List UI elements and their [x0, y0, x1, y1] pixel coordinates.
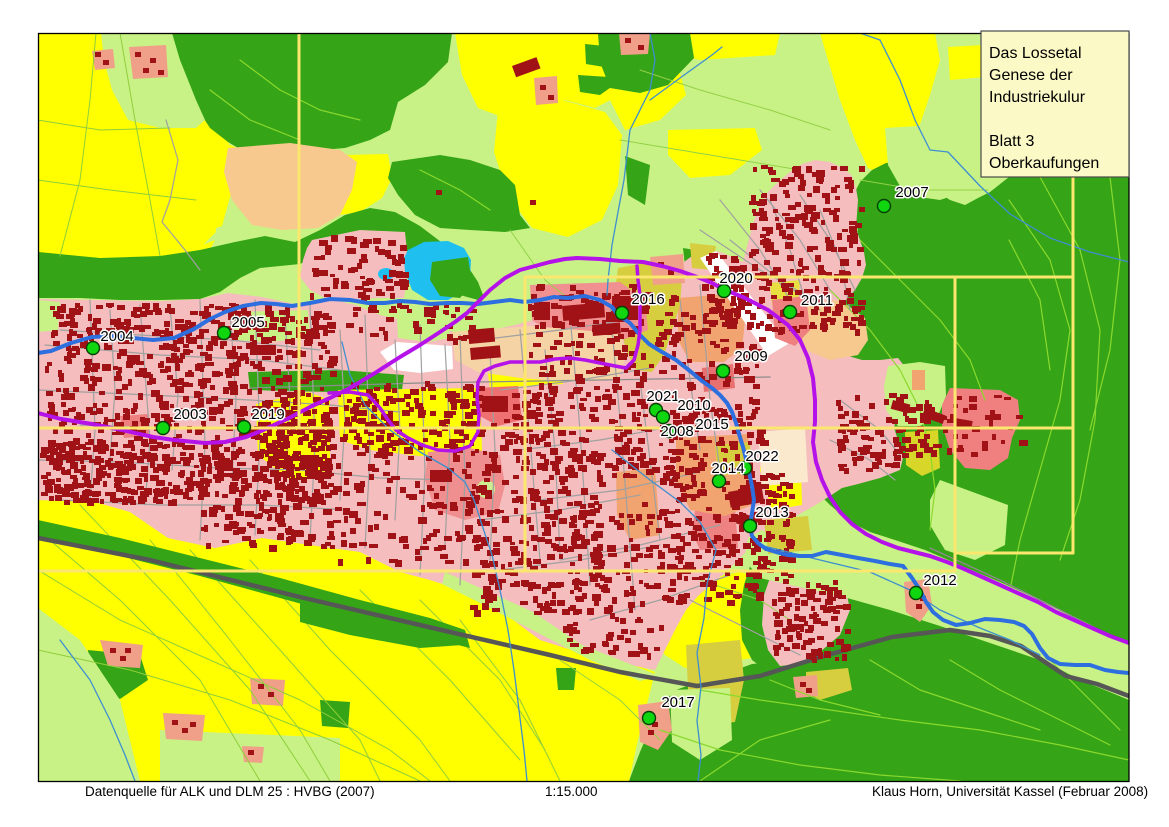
svg-text:2012: 2012 [923, 572, 956, 589]
svg-text:Blatt 3: Blatt 3 [989, 133, 1034, 150]
svg-text:2021: 2021 [646, 388, 679, 405]
svg-text:2022: 2022 [745, 448, 778, 465]
svg-text:2019: 2019 [251, 406, 284, 423]
svg-text:2003: 2003 [173, 406, 206, 423]
svg-text:2004: 2004 [100, 328, 133, 345]
svg-text:Klaus Horn, Universität Kassel: Klaus Horn, Universität Kassel (Februar … [872, 784, 1148, 799]
svg-text:2008: 2008 [660, 423, 693, 440]
svg-text:2009: 2009 [734, 348, 767, 365]
svg-text:2015: 2015 [695, 416, 728, 433]
svg-text:Das Lossetal: Das Lossetal [989, 45, 1082, 62]
svg-text:2005: 2005 [231, 314, 264, 331]
svg-text:1:15.000: 1:15.000 [545, 784, 598, 799]
svg-text:Oberkaufungen: Oberkaufungen [989, 155, 1099, 172]
svg-text:Genese der: Genese der [989, 67, 1073, 84]
svg-text:2017: 2017 [661, 694, 694, 711]
svg-text:2010: 2010 [677, 397, 710, 414]
svg-text:Datenquelle für ALK und DLM 25: Datenquelle für ALK und DLM 25 : HVBG (2… [85, 784, 375, 799]
svg-text:Industriekulur: Industriekulur [989, 89, 1086, 106]
svg-text:2014: 2014 [711, 460, 744, 477]
svg-text:2011: 2011 [801, 292, 833, 309]
svg-text:2020: 2020 [719, 270, 752, 287]
svg-text:2016: 2016 [631, 291, 664, 308]
svg-text:2013: 2013 [755, 504, 788, 521]
svg-text:2007: 2007 [895, 184, 928, 201]
